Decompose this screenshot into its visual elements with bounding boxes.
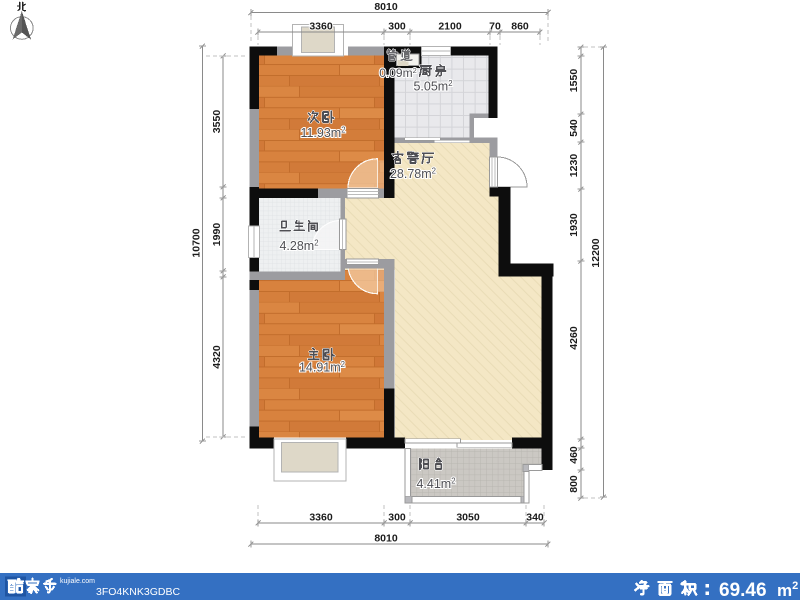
svg-text:860: 860 bbox=[511, 21, 529, 33]
svg-text:70: 70 bbox=[489, 21, 501, 33]
svg-text:4260: 4260 bbox=[568, 326, 580, 350]
svg-text:340: 340 bbox=[526, 512, 544, 524]
svg-text:460: 460 bbox=[568, 446, 580, 464]
svg-text:kujiale.com: kujiale.com bbox=[60, 578, 95, 585]
svg-text:0.09m2: 0.09m2 bbox=[379, 66, 416, 80]
svg-text:1990: 1990 bbox=[211, 223, 223, 247]
svg-text:5.05m2: 5.05m2 bbox=[413, 79, 452, 93]
svg-text:10700: 10700 bbox=[190, 228, 202, 257]
svg-text:2100: 2100 bbox=[438, 21, 462, 33]
svg-text:4320: 4320 bbox=[211, 345, 223, 369]
svg-text:11.93m2: 11.93m2 bbox=[300, 126, 345, 140]
svg-text:69.46: 69.46 bbox=[719, 580, 767, 600]
svg-text:3550: 3550 bbox=[211, 110, 223, 134]
svg-text:3360: 3360 bbox=[309, 21, 333, 33]
svg-text:3360: 3360 bbox=[309, 512, 333, 524]
svg-text:3FO4KNK3GDBC: 3FO4KNK3GDBC bbox=[96, 586, 180, 598]
svg-text:1930: 1930 bbox=[568, 213, 580, 237]
svg-text:300: 300 bbox=[388, 512, 406, 524]
svg-text:4.41m2: 4.41m2 bbox=[416, 477, 455, 491]
svg-text:1230: 1230 bbox=[568, 154, 580, 178]
svg-text:1550: 1550 bbox=[568, 69, 580, 93]
svg-text:14.91m2: 14.91m2 bbox=[299, 360, 345, 374]
svg-text:8010: 8010 bbox=[374, 1, 398, 13]
svg-text:4.28m2: 4.28m2 bbox=[279, 239, 318, 253]
svg-text:540: 540 bbox=[568, 119, 580, 137]
svg-text:28.78m2: 28.78m2 bbox=[390, 167, 436, 181]
svg-text:8010: 8010 bbox=[374, 533, 398, 545]
svg-text:3050: 3050 bbox=[456, 512, 480, 524]
svg-text:800: 800 bbox=[568, 475, 580, 493]
svg-text:12200: 12200 bbox=[590, 238, 602, 267]
svg-text:300: 300 bbox=[388, 21, 406, 33]
